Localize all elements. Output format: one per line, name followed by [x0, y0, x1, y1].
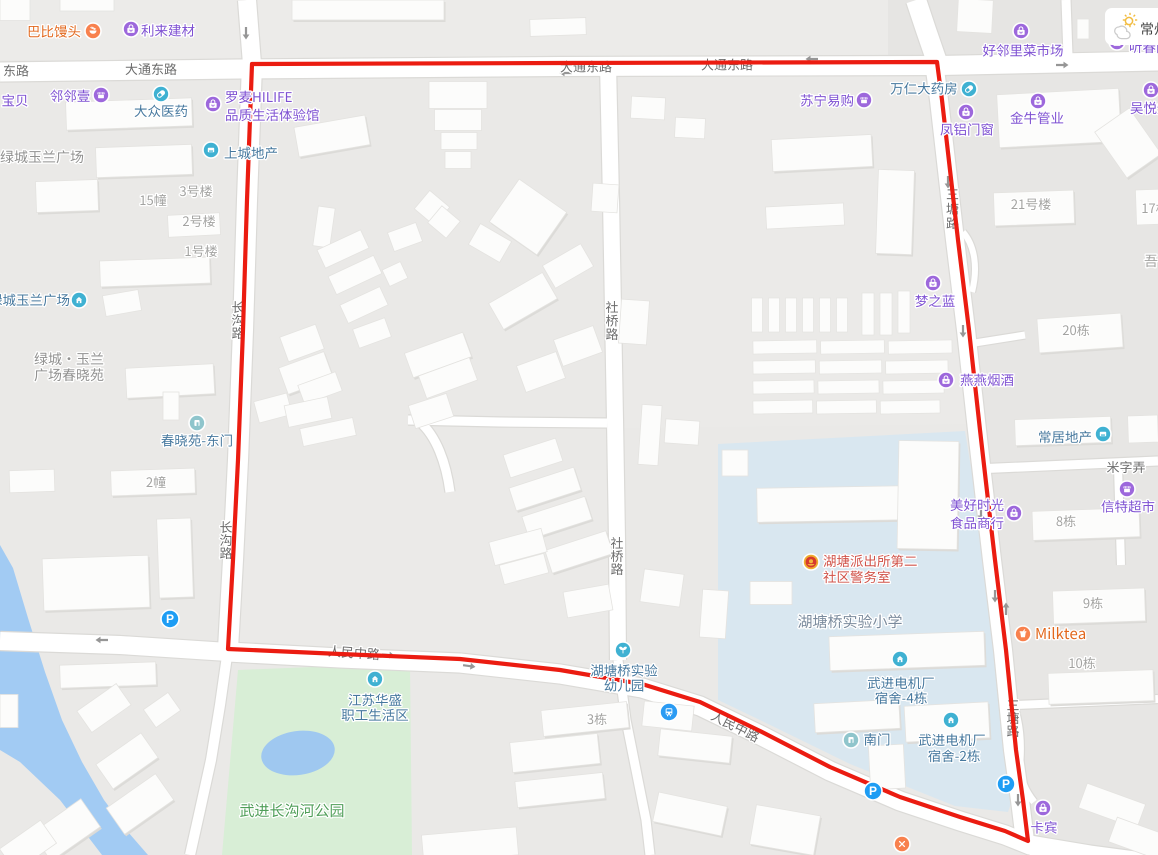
svg-text:P: P [1002, 777, 1010, 791]
svg-text:P: P [166, 612, 174, 626]
svg-text:P: P [869, 784, 877, 798]
